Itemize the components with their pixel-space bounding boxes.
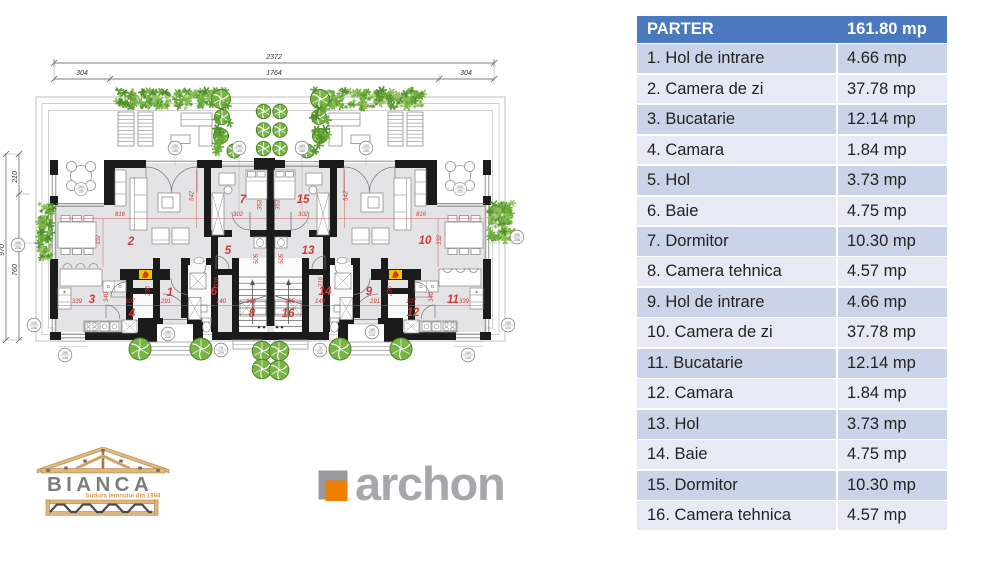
svg-text:70: 70 <box>219 346 223 350</box>
svg-text:816: 816 <box>115 212 126 218</box>
svg-text:150: 150 <box>172 144 178 148</box>
svg-text:332: 332 <box>96 234 102 245</box>
svg-text:340: 340 <box>104 291 110 302</box>
svg-text:archon: archon <box>355 457 505 510</box>
svg-text:14: 14 <box>319 286 332 298</box>
svg-text:250: 250 <box>78 190 84 194</box>
svg-text:190: 190 <box>15 241 21 245</box>
svg-text:100: 100 <box>31 321 37 325</box>
svg-text:250: 250 <box>457 185 463 189</box>
svg-text:6: 6 <box>211 286 218 298</box>
svg-text:970: 970 <box>0 244 6 256</box>
svg-text:180: 180 <box>236 144 242 148</box>
svg-text:760: 760 <box>12 264 19 276</box>
svg-text:3: 3 <box>89 294 96 306</box>
svg-text:70: 70 <box>318 346 322 350</box>
svg-text:1764: 1764 <box>266 70 282 77</box>
svg-text:2372: 2372 <box>265 54 282 61</box>
svg-text:140: 140 <box>315 299 326 305</box>
svg-text:107: 107 <box>125 299 136 305</box>
svg-text:7: 7 <box>240 194 247 206</box>
svg-text:304: 304 <box>460 70 472 77</box>
svg-text:140: 140 <box>465 356 471 360</box>
svg-text:190: 190 <box>363 149 369 153</box>
svg-text:195: 195 <box>285 299 296 305</box>
svg-text:10: 10 <box>419 235 432 247</box>
svg-text:291: 291 <box>160 299 171 305</box>
svg-text:353: 353 <box>276 199 282 210</box>
svg-text:16: 16 <box>282 308 295 320</box>
svg-text:210: 210 <box>12 171 19 184</box>
svg-text:9: 9 <box>366 286 373 298</box>
svg-text:140: 140 <box>31 326 37 330</box>
svg-text:150: 150 <box>369 328 375 332</box>
svg-text:230: 230 <box>218 351 224 355</box>
svg-text:150: 150 <box>165 330 171 334</box>
svg-text:4: 4 <box>128 308 136 320</box>
svg-text:Sudura lemnului din 1994: Sudura lemnului din 1994 <box>86 493 162 500</box>
svg-text:1: 1 <box>167 287 173 299</box>
svg-text:15: 15 <box>297 194 310 206</box>
svg-text:210: 210 <box>369 333 375 337</box>
svg-text:339: 339 <box>459 299 470 305</box>
svg-text:542: 542 <box>190 190 196 201</box>
svg-text:190: 190 <box>172 149 178 153</box>
svg-text:340: 340 <box>429 291 435 302</box>
svg-text:180: 180 <box>505 321 511 325</box>
svg-text:107: 107 <box>406 299 417 305</box>
svg-text:302: 302 <box>298 212 309 218</box>
svg-text:190: 190 <box>465 351 471 355</box>
svg-text:8: 8 <box>249 308 256 320</box>
svg-text:11: 11 <box>447 294 459 306</box>
svg-text:190: 190 <box>514 233 520 237</box>
svg-text:195: 195 <box>246 299 257 305</box>
svg-text:190: 190 <box>62 351 68 355</box>
svg-text:210: 210 <box>165 335 171 339</box>
svg-text:140: 140 <box>216 299 227 305</box>
svg-text:5: 5 <box>225 245 232 257</box>
svg-text:236: 236 <box>146 285 152 297</box>
svg-text:140: 140 <box>505 326 511 330</box>
svg-text:236: 236 <box>388 285 394 297</box>
svg-text:256: 256 <box>514 238 520 242</box>
svg-text:332: 332 <box>437 234 443 245</box>
svg-text:250: 250 <box>457 190 463 194</box>
svg-text:150: 150 <box>236 149 242 153</box>
svg-text:150: 150 <box>299 149 305 153</box>
svg-text:150: 150 <box>363 144 369 148</box>
svg-text:542: 542 <box>344 190 350 201</box>
svg-text:2: 2 <box>127 236 135 248</box>
svg-text:816: 816 <box>416 212 427 218</box>
svg-text:291: 291 <box>369 299 380 305</box>
svg-text:13: 13 <box>302 245 315 257</box>
svg-text:140: 140 <box>62 356 68 360</box>
svg-text:230: 230 <box>317 351 323 355</box>
svg-text:250: 250 <box>78 185 84 189</box>
svg-text:353: 353 <box>258 199 264 210</box>
svg-text:12: 12 <box>407 307 420 319</box>
svg-text:339: 339 <box>72 299 83 305</box>
svg-text:256: 256 <box>15 246 21 250</box>
svg-text:180: 180 <box>299 144 305 148</box>
svg-text:505: 505 <box>254 253 260 264</box>
svg-text:302: 302 <box>233 212 244 218</box>
svg-text:505: 505 <box>279 253 285 264</box>
svg-text:304: 304 <box>76 70 88 77</box>
